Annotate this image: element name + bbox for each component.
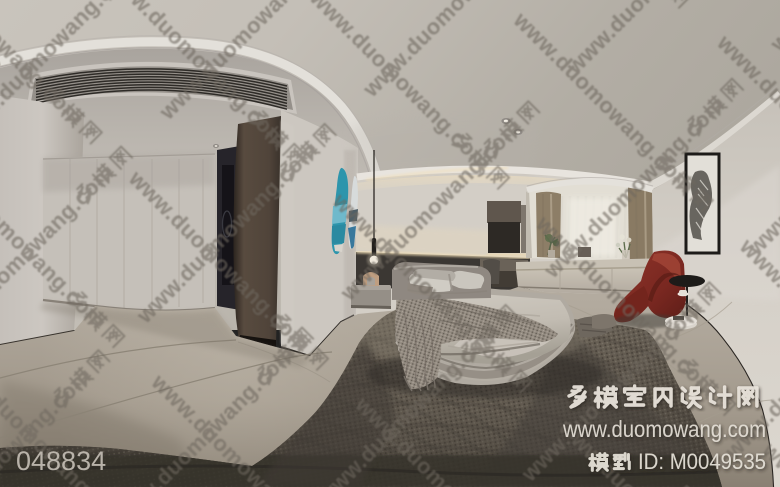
- svg-text:048834: 048834: [16, 446, 106, 476]
- svg-text:www.duomowang.com: www.duomowang.com: [562, 416, 766, 442]
- svg-text:ID: M0049535: ID: M0049535: [638, 449, 766, 474]
